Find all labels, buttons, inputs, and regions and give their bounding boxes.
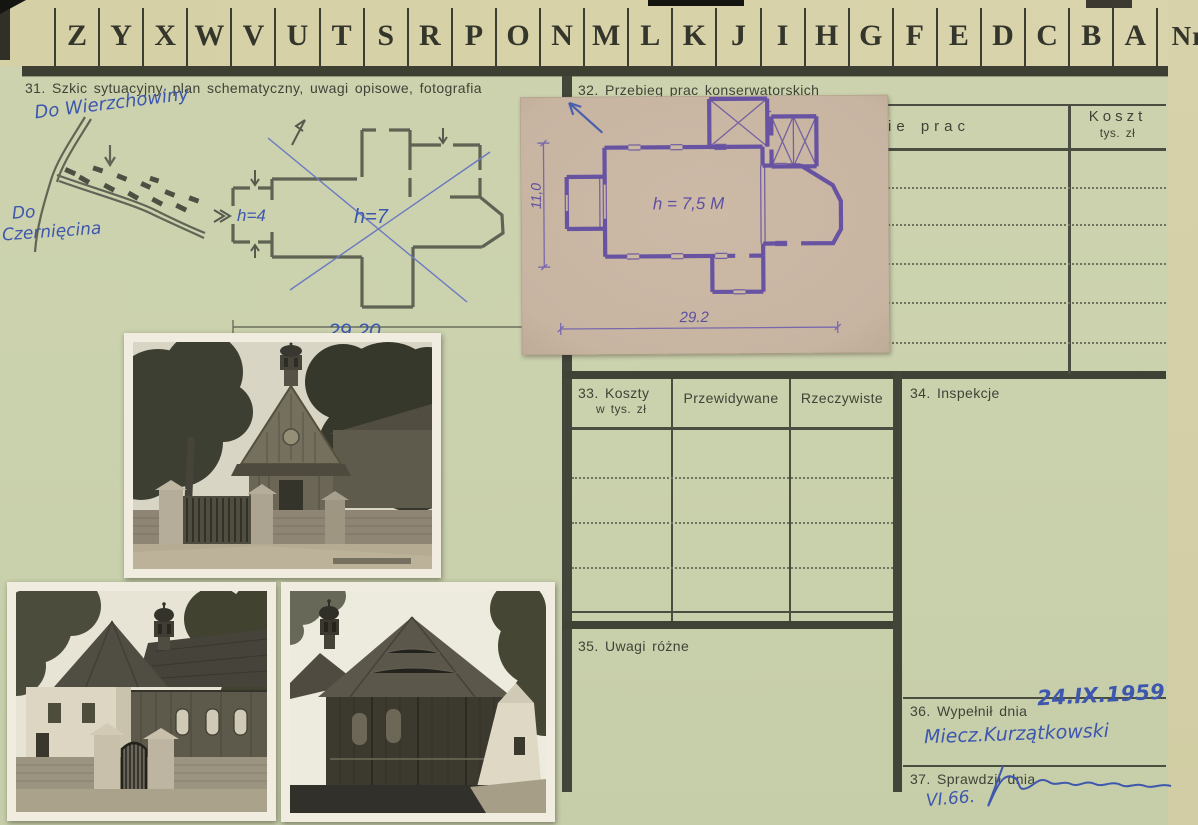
costs-table-row-line (572, 477, 893, 479)
index-letter: G (848, 8, 892, 66)
blueprint-height-note: h = 7,5 M (653, 194, 725, 214)
photo-church-front-view (124, 333, 441, 578)
index-letter: J (715, 8, 759, 66)
works-column-header-partial: ie prac (888, 118, 970, 135)
index-letter: F (892, 8, 936, 66)
photo-church-apse-view (281, 582, 555, 822)
scan-edge-artifact-top (648, 0, 744, 6)
section36-title: 36. Wypełnił dnia (910, 703, 1027, 719)
section32-bottom-rule (562, 371, 1166, 379)
scan-edge-artifact-top-right (1086, 0, 1132, 8)
pasted-blueprint: h = 7,5 M 29.2 11,0 (520, 95, 890, 356)
costs-table-last-row-line (572, 611, 893, 613)
photo-caption-stamp (333, 558, 411, 564)
index-letter: S (363, 8, 407, 66)
index-letter: P (451, 8, 495, 66)
cost-column-header: Koszt (1069, 108, 1166, 125)
annotation-nave-height: h=7 (354, 206, 389, 228)
index-number-label: Nr (1156, 8, 1198, 66)
scan-edge-artifact-left (0, 0, 10, 60)
index-letter: R (407, 8, 451, 66)
index-letter: O (495, 8, 539, 66)
costs-planned-header: Przewidywane (673, 390, 789, 406)
costs-table-row-line (572, 567, 893, 569)
section33-title: 33. Koszty (578, 385, 649, 401)
photo-church-side-view (7, 582, 276, 821)
costs-table-row-line (572, 522, 893, 524)
section33-title-unit: w tys. zł (596, 402, 646, 416)
site-sketch-pencil (5, 105, 220, 260)
index-letter: T (319, 8, 363, 66)
index-letter: L (627, 8, 671, 66)
index-letter: K (671, 8, 715, 66)
archive-card: Z Y X W V U T S R P O N M L K J I H G F … (0, 0, 1198, 825)
section34-left-divider (893, 371, 902, 792)
index-letter-row: Z Y X W V U T S R P O N M L K J I H G F … (54, 8, 1198, 66)
filled-date-handwritten: 24.IX.1959 (1036, 680, 1165, 711)
index-letter: U (274, 8, 318, 66)
card-right-margin (1168, 0, 1198, 825)
index-letter: B (1068, 8, 1112, 66)
index-letter: Z (54, 8, 98, 66)
costs-table-divider-2 (789, 379, 791, 621)
top-rule (22, 66, 1168, 76)
section31-title: 31. Szkic sytuacyjny, plan schematyczny,… (25, 80, 482, 96)
inspector-signature-scribble (975, 760, 1185, 825)
index-letter: M (583, 8, 627, 66)
index-letter: W (186, 8, 230, 66)
floor-plan-pencil-sketch: h=4 h=7 29,20 (210, 100, 545, 345)
works-table-column-divider (1068, 104, 1071, 374)
index-letter: D (980, 8, 1024, 66)
section33-bottom-rule (562, 621, 898, 629)
index-letter: I (760, 8, 804, 66)
blueprint-width-dim: 11,0 (528, 183, 544, 210)
checked-date-handwritten: VI.66. (925, 787, 976, 811)
section35-title: 35. Uwagi różne (578, 638, 689, 654)
blueprint-length-dim: 29.2 (679, 309, 710, 326)
section34-title: 34. Inspekcje (910, 385, 1000, 401)
index-letter: C (1024, 8, 1068, 66)
costs-table-header-underline (572, 427, 893, 430)
index-letter: H (804, 8, 848, 66)
index-letter: V (230, 8, 274, 66)
costs-table-divider-1 (671, 379, 673, 621)
annotation-porch-height: h=4 (237, 206, 266, 225)
index-letter: Y (98, 8, 142, 66)
index-letter: N (539, 8, 583, 66)
index-letter: E (936, 8, 980, 66)
index-letter: A (1112, 8, 1156, 66)
filled-by-name-handwritten: Miecz.Kurzątkowski (924, 720, 1110, 748)
costs-actual-header: Rzeczywiste (791, 390, 893, 406)
index-letter: X (142, 8, 186, 66)
cost-column-header-unit: tys. zł (1069, 126, 1166, 140)
